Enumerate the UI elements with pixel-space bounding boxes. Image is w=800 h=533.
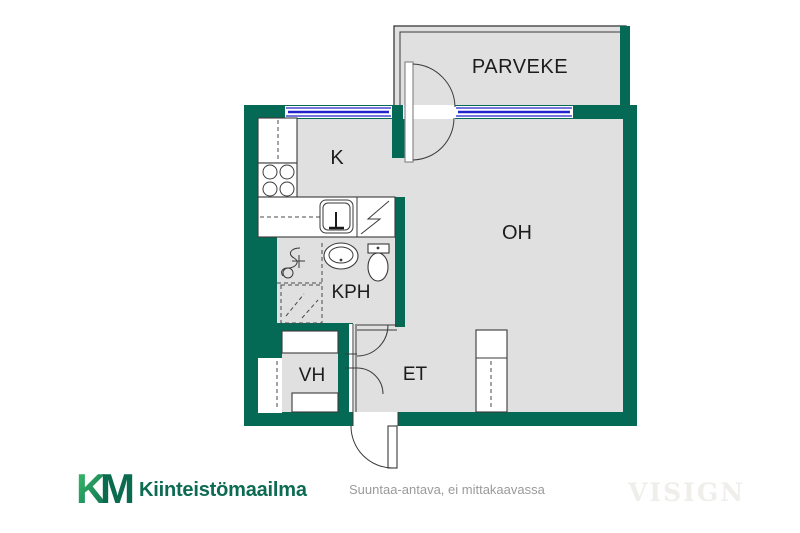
front-door-leaf: [388, 426, 397, 468]
room-label-closet: VH: [299, 365, 325, 386]
hall-alcove: [258, 358, 282, 413]
floorplan-drawing: PARVEKE K OH KPH VH ET K M Kiinteistömaa…: [0, 0, 800, 533]
front-door: [351, 426, 397, 468]
room-label-balcony: PARVEKE: [472, 56, 568, 78]
wall-right: [623, 105, 637, 426]
room-label-living-room: OH: [502, 222, 532, 244]
agency-name: Kiinteistömaailma: [139, 479, 308, 501]
floorplan-page: PARVEKE K OH KPH VH ET K M Kiinteistömaa…: [0, 0, 800, 533]
wall-bathroom-left: [258, 237, 277, 330]
km-logo: K M: [76, 465, 135, 512]
front-door-swing: [351, 426, 392, 468]
room-label-entry-hall: ET: [403, 364, 428, 385]
closet-shelf-bottom: [292, 393, 338, 412]
disclaimer-text: Suuntaa-antava, ei mittakaavassa: [349, 482, 546, 497]
balcony-door-leaf: [405, 62, 413, 162]
closet-shelf-top: [282, 331, 338, 353]
wall-partition-lower: [395, 197, 405, 327]
footer: K M Kiinteistömaailma Suuntaa-antava, ei…: [76, 465, 745, 512]
wall-left: [244, 105, 258, 426]
room-label-kitchen: K: [330, 147, 344, 169]
wall-bathroom-bottom: [277, 323, 353, 331]
wall-balcony-right: [620, 26, 630, 106]
wall-closet-right: [338, 331, 349, 412]
watermark-text: VISIGN: [627, 478, 745, 507]
km-logo-letter-m: M: [100, 465, 135, 512]
livingroom-wardrobe: [476, 330, 507, 412]
toilet-bowl: [368, 253, 388, 281]
front-door-opening: [353, 412, 398, 426]
wall-bottom: [244, 412, 637, 426]
wall-closet-left: [258, 323, 282, 358]
room-label-bathroom: KPH: [331, 282, 370, 303]
